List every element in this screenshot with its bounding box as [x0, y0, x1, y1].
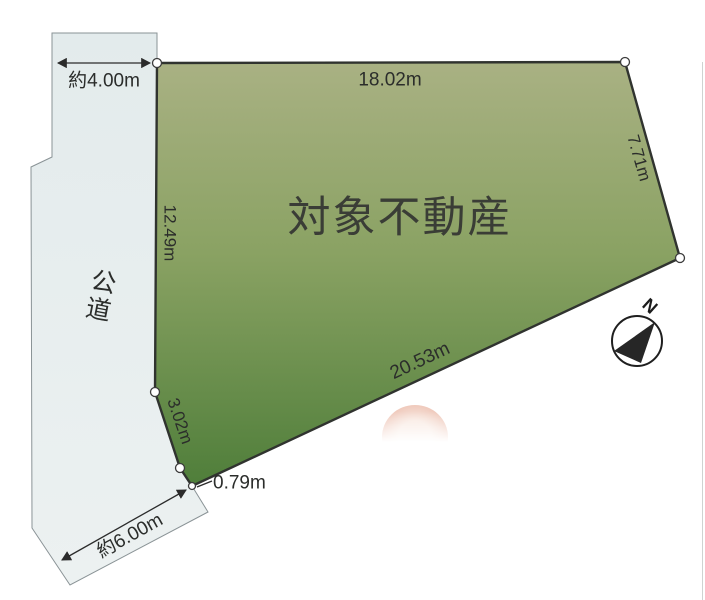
vertex-marker	[153, 59, 162, 68]
land-plot-figure: 約4.00m 18.02m 12.49m 7.71m 3.02m 20.53m …	[0, 0, 705, 600]
label-edge-top: 18.02m	[358, 70, 421, 91]
parcel-label: 対象不動産	[288, 194, 513, 242]
vertex-marker	[676, 254, 685, 263]
vertex-marker	[151, 388, 160, 397]
pink-stamp-mark	[382, 405, 448, 469]
vertex-marker	[621, 58, 630, 67]
label-edge-left: 12.49m	[161, 205, 180, 262]
vertex-marker	[189, 483, 196, 490]
label-edge-notch: 0.79m	[213, 473, 266, 494]
compass-north-label: N	[638, 294, 661, 318]
compass: N	[612, 294, 662, 366]
vertex-marker	[176, 464, 185, 473]
label-road-width-top: 約4.00m	[68, 70, 140, 92]
plot-svg: 約4.00m 18.02m 12.49m 7.71m 3.02m 20.53m …	[0, 0, 705, 600]
